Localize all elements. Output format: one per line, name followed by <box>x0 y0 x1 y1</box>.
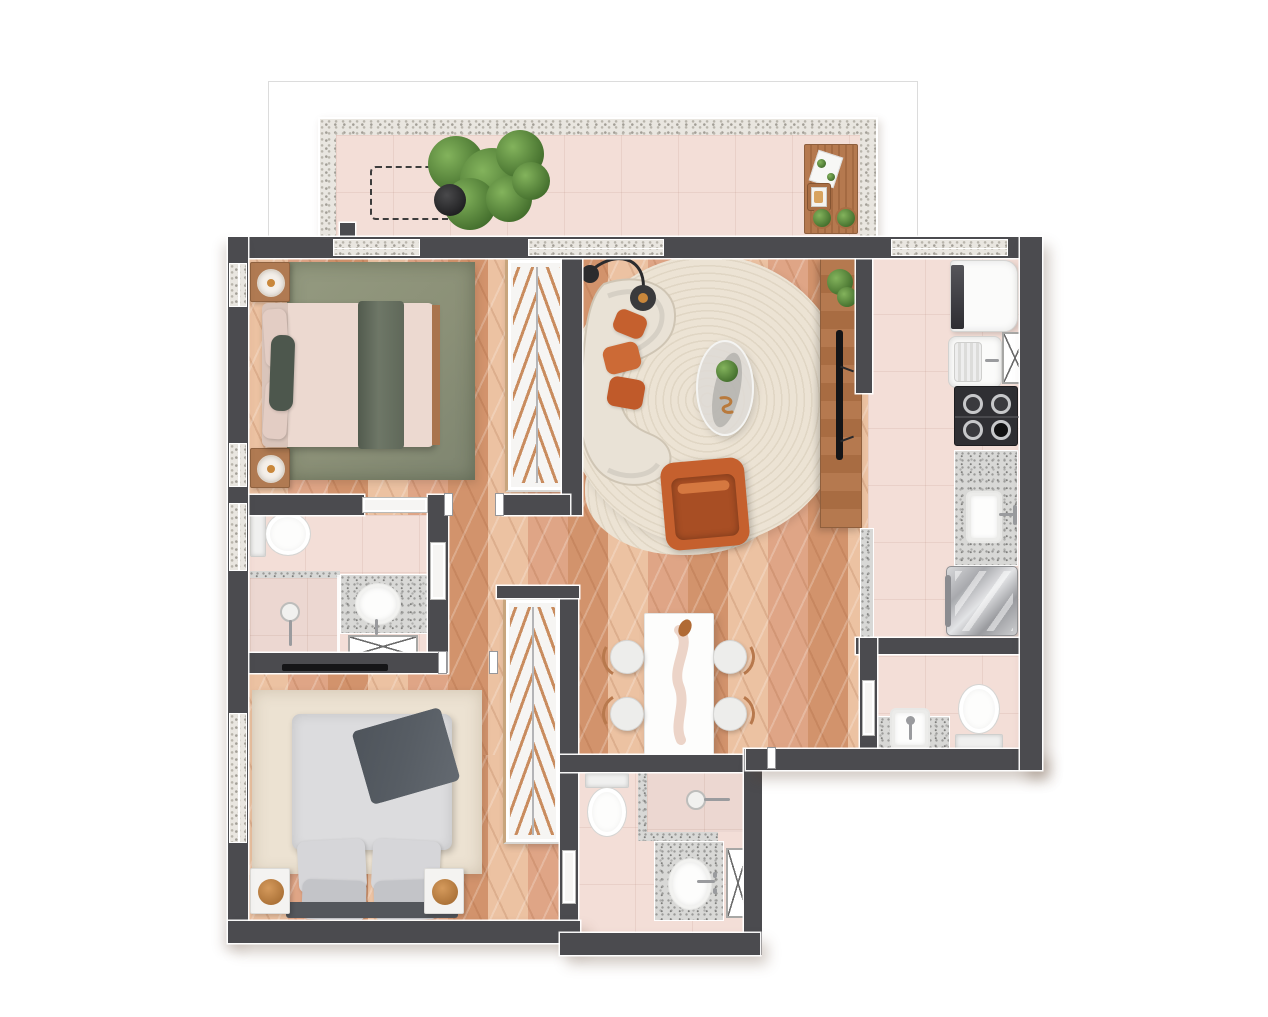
wood-decor <box>718 394 736 416</box>
door-jamb <box>444 493 453 516</box>
plant-pot <box>434 184 466 216</box>
hanger-rods <box>537 267 560 483</box>
door-jamb <box>489 651 498 674</box>
wall-kitchen-stub <box>856 257 872 393</box>
bed-frame-edge <box>432 305 440 445</box>
wall-exterior-bottom-east <box>746 749 1042 770</box>
laundry-tank <box>948 336 1002 388</box>
dining-chair <box>606 636 648 678</box>
bathroom2-toilet <box>584 773 630 839</box>
wood-lamp <box>258 879 284 905</box>
bedroom2-wardrobe <box>503 598 561 844</box>
shower-arm <box>289 620 292 646</box>
toilet-bowl <box>958 684 1000 734</box>
dining-chair <box>709 693 751 735</box>
shower-head <box>686 790 706 810</box>
door-jamb <box>438 651 447 674</box>
shower-threshold <box>250 571 340 578</box>
toilet-tank <box>585 773 629 788</box>
window-bathroom1 <box>229 503 247 571</box>
plant-pot-small <box>837 209 855 227</box>
wall-wc-north <box>856 638 1020 654</box>
tank-faucet <box>985 359 999 362</box>
shower-arm <box>704 798 730 801</box>
refrigerator <box>950 260 1018 332</box>
table-runner <box>645 614 715 756</box>
dining-table <box>644 613 714 755</box>
bedroom2-nightstand-left <box>250 868 290 914</box>
wall-bathroom2-east <box>744 749 762 955</box>
door-jamb <box>767 747 776 769</box>
bathroom2-vanity <box>654 841 724 921</box>
shower-head <box>280 602 300 622</box>
balcony-potted-tree <box>420 128 550 234</box>
console-plant <box>837 287 857 307</box>
door-corridor-wc <box>862 680 875 736</box>
bedroom2-wall-tv <box>282 664 388 671</box>
door-bedroom2-bathroom2 <box>562 850 576 904</box>
bedroom1-wardrobe <box>505 258 567 492</box>
toilet-bowl <box>265 512 311 556</box>
plant-pot-small <box>813 209 831 227</box>
bathroom1-vanity <box>340 574 428 634</box>
bedroom1-nightstand-top <box>250 262 290 302</box>
wall-wardrobe2-north <box>497 586 579 598</box>
wall-bedroom1-south-a <box>248 495 364 515</box>
washing-machine <box>946 566 1018 636</box>
dining-chair <box>709 636 751 678</box>
window-bedroom1-b <box>229 443 247 487</box>
wall-exterior-bottom-west <box>228 921 580 943</box>
window-bedroom2 <box>229 713 247 843</box>
bedroom1-nightstand-bottom <box>250 448 290 488</box>
kitchen-sink <box>966 491 1002 543</box>
oval-coffee-table <box>696 340 754 436</box>
toilet-tank <box>250 511 266 557</box>
wall-bedroom1-south-b <box>503 495 570 515</box>
wall-living-left <box>562 257 582 515</box>
door-bedroom1-bathroom1 <box>362 497 428 513</box>
kitchen-counter <box>954 450 1018 566</box>
bedroom1-bed <box>260 301 440 449</box>
toilet-bowl <box>587 787 627 837</box>
wall-exterior-right <box>1020 237 1042 770</box>
wood-lamp <box>432 879 458 905</box>
accent-pillow-green <box>269 335 296 412</box>
bathroom1-toilet <box>250 510 312 558</box>
shower-border-h <box>638 832 718 841</box>
shower-border-v <box>638 772 647 841</box>
door-bathroom1-hall <box>430 542 446 600</box>
window-kitchen <box>891 239 1008 256</box>
bedroom2-nightstand-right <box>424 868 464 914</box>
arc-floor-lamp <box>576 248 668 320</box>
vanity-faucet <box>375 619 378 635</box>
kitchen-pass-counter <box>860 528 874 656</box>
door-jamb <box>495 493 504 516</box>
wc-square-sink <box>890 708 930 750</box>
floor-plan <box>0 0 1268 1017</box>
table-lamp <box>257 455 285 483</box>
window-bedroom1-balcony <box>333 239 420 256</box>
vanity-sink <box>355 583 401 625</box>
orange-armchair <box>659 457 750 552</box>
toilet-tank <box>955 734 1003 750</box>
wall-bathroom2-north <box>560 755 760 772</box>
hanger-rods <box>513 267 536 483</box>
bed-throw-green <box>358 301 404 449</box>
gas-cooktop <box>954 386 1018 446</box>
wall-exterior-bottom-center <box>560 933 760 955</box>
wc-toilet <box>954 684 1004 752</box>
dining-chair <box>606 693 648 735</box>
window-bedroom1-a <box>229 263 247 307</box>
sofa-pillow-orange <box>606 375 647 411</box>
vanity-sink <box>668 858 712 910</box>
wardrobe-rail <box>532 607 534 835</box>
sliding-door-living-balcony <box>528 239 664 256</box>
wardrobe-rail <box>536 267 538 483</box>
balcony-table <box>804 144 858 234</box>
vanity-faucet <box>697 880 715 883</box>
hanger-rods <box>533 607 555 835</box>
table-plant <box>716 360 738 382</box>
hanger-rods <box>510 607 532 835</box>
table-lamp <box>257 269 285 297</box>
